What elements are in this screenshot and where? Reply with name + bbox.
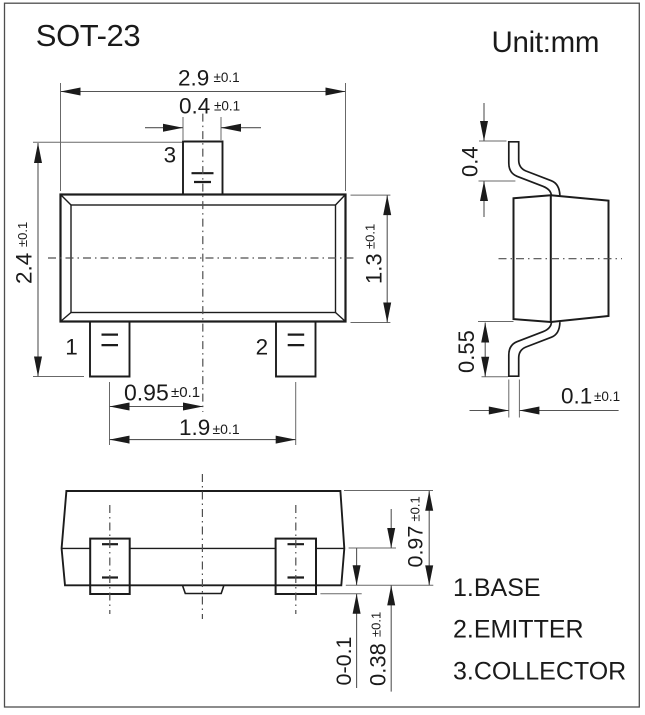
svg-text:±0.1: ±0.1	[214, 99, 240, 114]
svg-text:SOT-23: SOT-23	[36, 18, 140, 53]
svg-text:Unit:mm: Unit:mm	[492, 26, 600, 59]
svg-text:0.4: 0.4	[179, 94, 210, 119]
svg-text:2.4: 2.4	[11, 253, 36, 284]
svg-text:±0.1: ±0.1	[214, 70, 240, 85]
svg-text:2.EMITTER: 2.EMITTER	[453, 616, 584, 644]
svg-text:3: 3	[164, 143, 177, 168]
svg-text:±0.1: ±0.1	[171, 384, 200, 401]
svg-text:2.9: 2.9	[178, 66, 209, 91]
svg-text:0.55: 0.55	[454, 330, 479, 373]
svg-text:±0.1: ±0.1	[15, 222, 30, 247]
svg-text:1.BASE: 1.BASE	[453, 574, 541, 602]
svg-text:2: 2	[256, 335, 269, 360]
svg-text:1.9: 1.9	[179, 415, 210, 440]
svg-text:0.95: 0.95	[124, 379, 169, 405]
svg-text:0.1: 0.1	[561, 384, 592, 409]
svg-text:1.3: 1.3	[362, 253, 387, 284]
svg-text:1: 1	[65, 335, 78, 360]
svg-text:±0.1: ±0.1	[369, 612, 384, 637]
svg-text:±0.1: ±0.1	[363, 224, 378, 249]
svg-text:±0.1: ±0.1	[408, 496, 423, 521]
svg-text:3.COLLECTOR: 3.COLLECTOR	[453, 657, 626, 685]
svg-text:±0.1: ±0.1	[594, 389, 620, 404]
svg-text:0-0.1: 0-0.1	[332, 636, 356, 685]
svg-text:0.4: 0.4	[458, 146, 483, 177]
svg-text:0.97: 0.97	[404, 526, 428, 568]
svg-text:±0.1: ±0.1	[213, 421, 240, 437]
svg-text:0.38: 0.38	[366, 643, 391, 686]
